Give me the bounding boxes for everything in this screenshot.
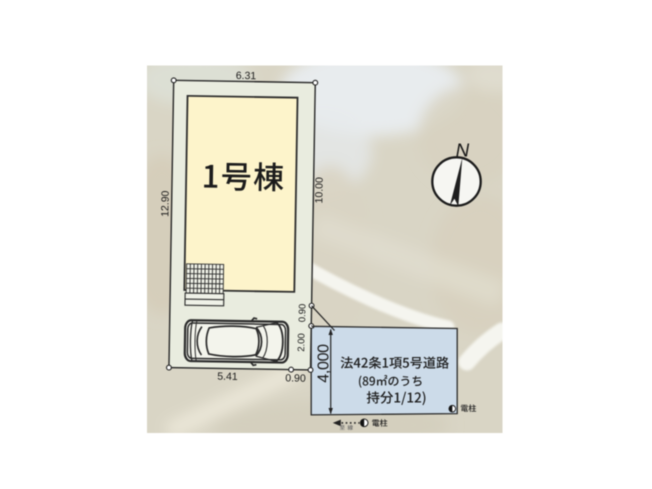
svg-text:5.41: 5.41: [217, 371, 238, 383]
svg-text:0.90: 0.90: [285, 372, 306, 384]
svg-text:12.90: 12.90: [159, 190, 171, 217]
svg-text:0.90: 0.90: [297, 304, 308, 323]
svg-text:10.00: 10.00: [313, 177, 325, 204]
svg-text:4,000: 4,000: [315, 344, 332, 383]
svg-text:6.31: 6.31: [236, 70, 257, 82]
svg-text:2.00: 2.00: [296, 333, 307, 352]
